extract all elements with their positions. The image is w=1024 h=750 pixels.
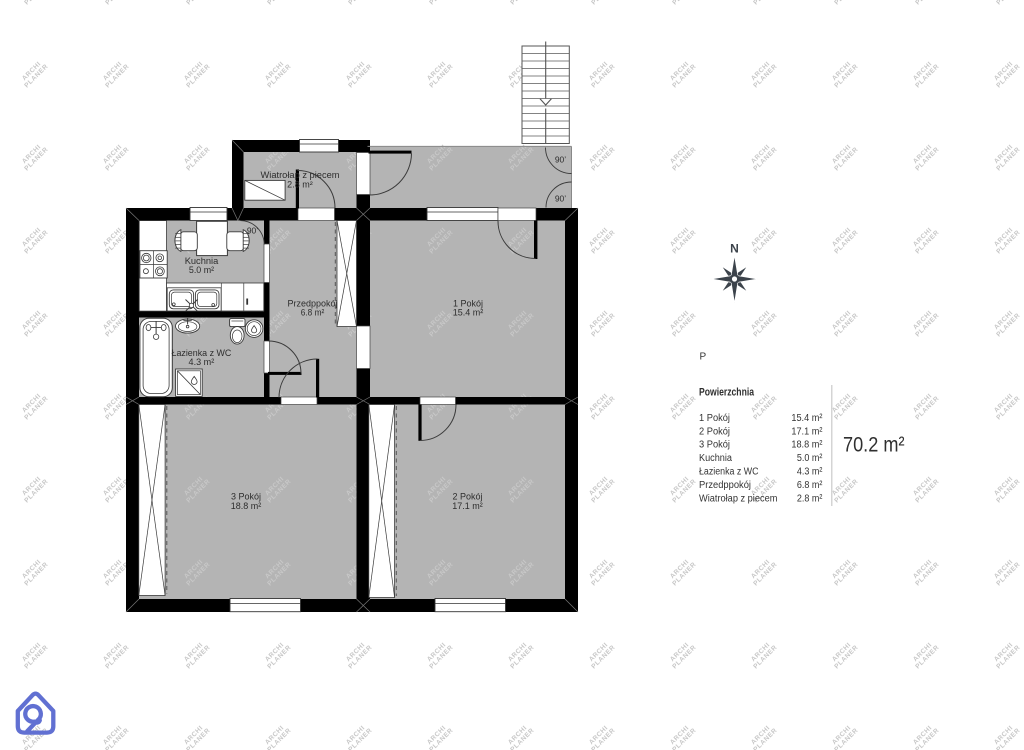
svg-text:Kuchnia: Kuchnia [699,453,732,464]
svg-text:4.3 m²: 4.3 m² [797,467,823,478]
svg-text:Powierzchnia: Powierzchnia [699,387,755,399]
svg-text:70.2 m²: 70.2 m² [843,433,905,456]
svg-text:Przedppokój: Przedppokój [699,480,751,491]
svg-text:18.8 m²: 18.8 m² [791,440,823,451]
svg-text:3 Pokój: 3 Pokój [699,440,730,451]
svg-text:6.8 m²: 6.8 m² [301,308,325,319]
svg-text:Łazienka z WC: Łazienka z WC [699,467,759,478]
svg-text:5.0 m²: 5.0 m² [189,265,214,276]
svg-text:90’: 90’ [555,155,566,165]
svg-text:2.8 m²: 2.8 m² [797,493,823,504]
svg-text:N: N [730,241,739,255]
svg-text:15.4 m²: 15.4 m² [791,413,823,424]
svg-text:P: P [700,352,707,363]
svg-text:5.0 m²: 5.0 m² [797,453,823,464]
svg-text:17.1 m²: 17.1 m² [791,426,823,437]
svg-text:4.3 m²: 4.3 m² [189,357,215,368]
svg-text:17.1 m²: 17.1 m² [452,501,483,512]
svg-text:6.8 m²: 6.8 m² [797,480,823,491]
svg-text:Wiatrołap z piecem: Wiatrołap z piecem [699,493,777,504]
svg-text:18.8 m²: 18.8 m² [231,501,262,512]
svg-text:2 Pokój: 2 Pokój [699,426,730,437]
svg-text:1 Pokój: 1 Pokój [699,413,730,424]
svg-text:90’: 90’ [555,194,566,204]
svg-text:15.4 m²: 15.4 m² [453,308,484,319]
svg-text:2.8 m²: 2.8 m² [287,179,313,189]
